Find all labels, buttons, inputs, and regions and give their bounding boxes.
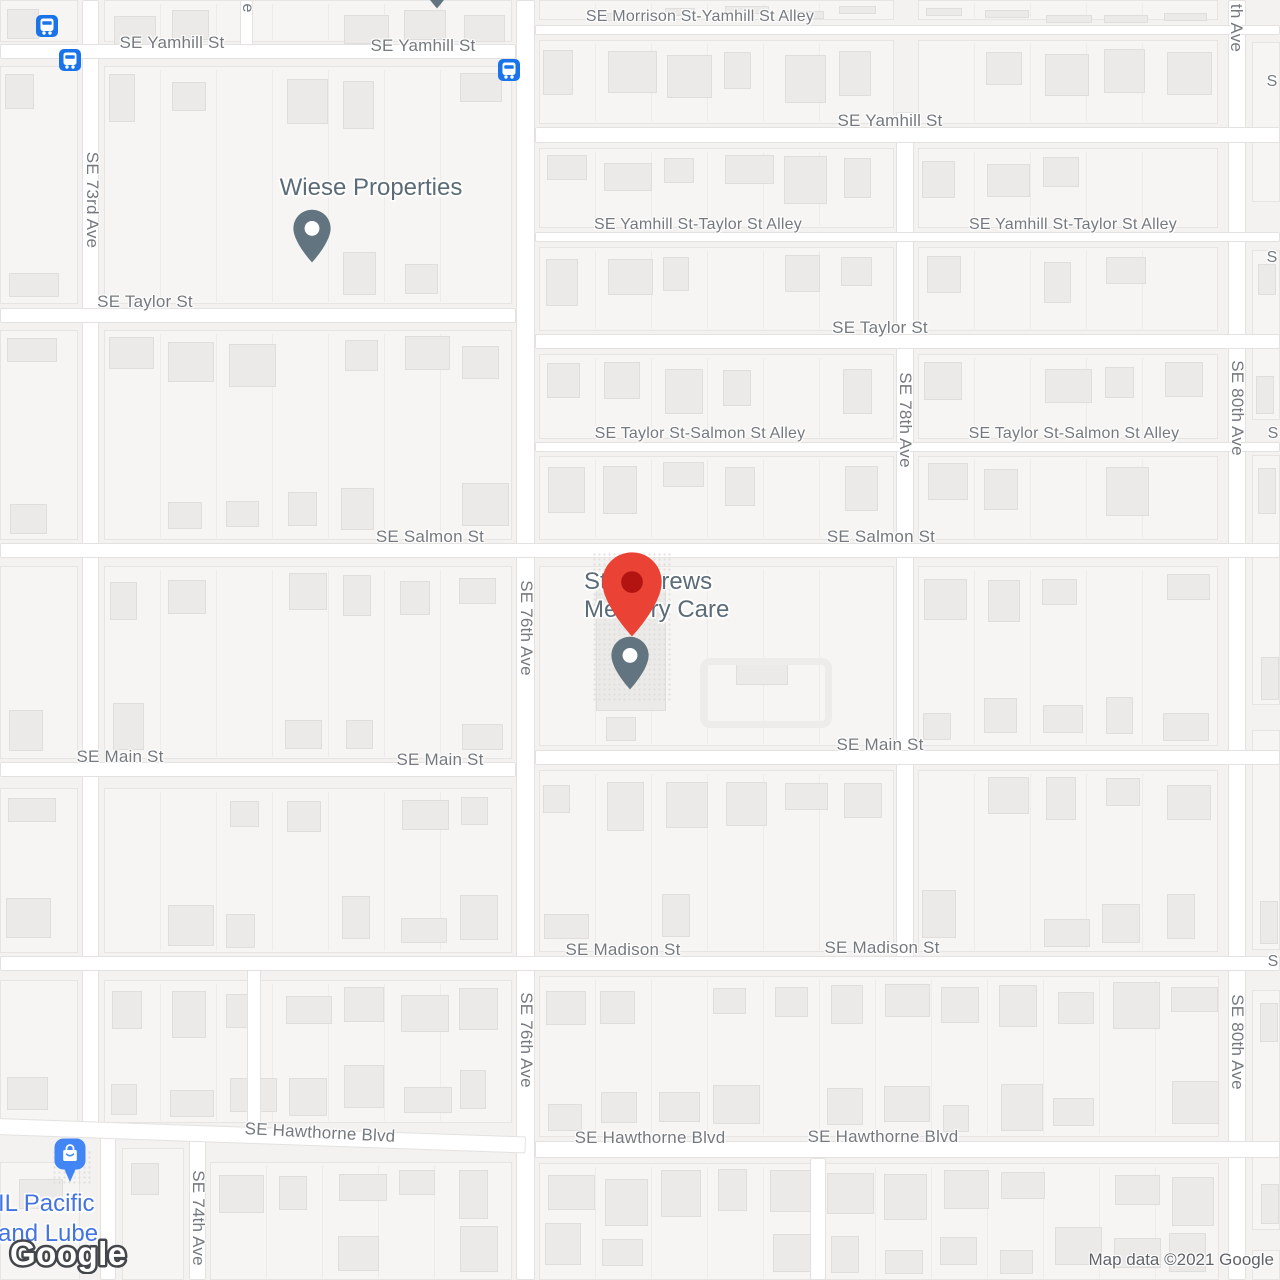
building bbox=[344, 1065, 384, 1108]
lot-line bbox=[974, 570, 975, 744]
building bbox=[401, 918, 447, 943]
building bbox=[461, 797, 488, 825]
lot-line bbox=[595, 44, 596, 122]
building bbox=[662, 894, 689, 937]
building bbox=[6, 898, 51, 938]
lot-line bbox=[216, 334, 217, 538]
building bbox=[607, 782, 644, 831]
building bbox=[844, 783, 883, 818]
building bbox=[608, 259, 653, 295]
lot-line bbox=[707, 980, 708, 1135]
building bbox=[999, 985, 1038, 1028]
lot-line bbox=[595, 152, 596, 226]
building bbox=[405, 264, 438, 294]
city-block bbox=[104, 330, 512, 540]
building bbox=[168, 905, 213, 946]
lot-line bbox=[328, 570, 329, 757]
building bbox=[400, 581, 430, 615]
building bbox=[884, 1086, 931, 1123]
building bbox=[172, 82, 207, 112]
bus-stop-icon[interactable] bbox=[498, 59, 520, 81]
lot-line bbox=[384, 570, 385, 757]
map-canvas[interactable]: SE Yamhill StSE Yamhill StSE Morrison St… bbox=[0, 0, 1280, 1280]
building bbox=[460, 73, 502, 101]
building bbox=[724, 52, 751, 89]
road bbox=[247, 956, 261, 1136]
lot-line bbox=[384, 334, 385, 538]
building bbox=[602, 1239, 642, 1266]
building bbox=[1045, 54, 1090, 96]
lot-line bbox=[651, 774, 652, 950]
building bbox=[601, 1092, 637, 1123]
building bbox=[1164, 13, 1207, 21]
building bbox=[827, 1173, 874, 1214]
building bbox=[926, 8, 962, 16]
lot-line bbox=[440, 570, 441, 757]
building bbox=[659, 1092, 700, 1123]
building bbox=[546, 259, 578, 306]
building bbox=[604, 163, 653, 191]
city-block bbox=[539, 976, 1219, 1137]
city-block bbox=[918, 247, 1218, 331]
building bbox=[279, 1176, 307, 1210]
city-block bbox=[918, 770, 1218, 952]
building bbox=[346, 720, 372, 749]
street-label: SE 80th Ave bbox=[1227, 994, 1247, 1089]
building bbox=[843, 369, 872, 415]
building bbox=[984, 698, 1017, 733]
building bbox=[605, 1179, 648, 1227]
building bbox=[665, 369, 704, 414]
building bbox=[544, 914, 589, 940]
building bbox=[1058, 992, 1094, 1024]
building bbox=[109, 74, 136, 123]
building bbox=[927, 256, 961, 292]
lot-line bbox=[160, 792, 161, 951]
lot-line bbox=[1030, 152, 1031, 226]
lot-line bbox=[974, 774, 975, 950]
building bbox=[1102, 904, 1139, 943]
building bbox=[1001, 1172, 1045, 1199]
building bbox=[1113, 982, 1160, 1029]
lot-line bbox=[328, 792, 329, 951]
building bbox=[604, 362, 639, 399]
building bbox=[338, 1236, 379, 1272]
building bbox=[1258, 264, 1276, 295]
lot-line bbox=[931, 980, 932, 1135]
building bbox=[986, 52, 1022, 85]
building bbox=[230, 801, 259, 827]
map-copyright: Map data ©2021 Google bbox=[1089, 1250, 1275, 1270]
street-label: SE Taylor St-Salmon St Alley bbox=[595, 425, 806, 443]
road bbox=[810, 1158, 826, 1280]
lot-line bbox=[328, 334, 329, 538]
city-block bbox=[0, 566, 78, 759]
city-block bbox=[1252, 990, 1280, 1230]
building bbox=[1167, 52, 1212, 95]
lot-line bbox=[272, 4, 273, 40]
building bbox=[723, 370, 751, 407]
street-label: S bbox=[1268, 425, 1279, 443]
street-label: SE 78th Ave bbox=[895, 372, 915, 467]
lot-line bbox=[216, 70, 217, 302]
lot-line bbox=[272, 570, 273, 757]
building bbox=[884, 1174, 927, 1220]
building bbox=[1167, 574, 1211, 600]
lot-line bbox=[763, 460, 764, 538]
building bbox=[1105, 367, 1134, 398]
lot-line bbox=[1030, 774, 1031, 950]
building bbox=[1172, 1081, 1219, 1124]
red-location-pin-icon[interactable] bbox=[601, 550, 663, 640]
lot-line bbox=[1030, 44, 1031, 122]
building bbox=[1260, 1003, 1278, 1041]
poi-label-wiese-properties[interactable]: Wiese Properties bbox=[280, 174, 463, 202]
building bbox=[545, 1223, 581, 1265]
lot-line bbox=[595, 1167, 596, 1278]
building bbox=[131, 1163, 159, 1195]
lot-line bbox=[819, 358, 820, 437]
lot-line bbox=[707, 460, 708, 538]
road bbox=[535, 25, 1280, 35]
building bbox=[600, 991, 635, 1024]
building bbox=[459, 578, 497, 604]
city-block bbox=[210, 1162, 512, 1280]
city-block bbox=[0, 980, 78, 1123]
building bbox=[229, 344, 276, 388]
building bbox=[459, 988, 497, 1030]
lot-line bbox=[595, 980, 596, 1135]
lot-line bbox=[160, 570, 161, 757]
lot-line bbox=[1142, 774, 1143, 950]
building bbox=[226, 501, 259, 527]
street-label: S bbox=[1268, 953, 1279, 971]
building bbox=[1043, 157, 1079, 187]
building bbox=[5, 74, 34, 108]
building bbox=[113, 703, 144, 750]
building bbox=[784, 156, 827, 203]
city-block bbox=[104, 788, 512, 953]
street-label: SE Yamhill St bbox=[371, 36, 476, 56]
lot-line bbox=[974, 460, 975, 538]
street-label: SE Hawthorne Blvd bbox=[808, 1127, 959, 1147]
shopping-store-pin-icon[interactable] bbox=[53, 1137, 87, 1183]
building bbox=[460, 1226, 498, 1272]
lot-line bbox=[595, 251, 596, 329]
google-logo-text: Google bbox=[10, 1235, 127, 1272]
building bbox=[1106, 778, 1140, 807]
lot-line bbox=[707, 251, 708, 329]
building bbox=[1053, 1098, 1094, 1126]
lot-line bbox=[763, 44, 764, 122]
building bbox=[1106, 697, 1133, 734]
building bbox=[1260, 901, 1278, 944]
building bbox=[922, 890, 955, 938]
city-block bbox=[539, 770, 894, 952]
building bbox=[460, 1070, 486, 1109]
building bbox=[988, 777, 1030, 814]
city-block bbox=[918, 566, 1218, 746]
building bbox=[401, 995, 449, 1032]
street-label: SE Main St bbox=[396, 750, 483, 770]
lot-line bbox=[322, 1166, 323, 1278]
building bbox=[603, 466, 637, 514]
city-block bbox=[104, 980, 512, 1123]
building bbox=[608, 51, 657, 93]
building bbox=[839, 6, 876, 14]
building bbox=[1106, 467, 1149, 516]
street-label: SE Morrison St-Yamhill St Alley bbox=[586, 8, 814, 26]
building bbox=[172, 991, 206, 1038]
building bbox=[168, 502, 203, 529]
lot-line bbox=[875, 980, 876, 1135]
lot-line bbox=[216, 984, 217, 1121]
lot-line bbox=[1142, 570, 1143, 744]
lot-line bbox=[266, 1166, 267, 1278]
lot-line bbox=[1030, 460, 1031, 538]
building bbox=[543, 785, 570, 813]
building bbox=[345, 340, 377, 371]
poi-label-line1: IL Pacific bbox=[0, 1189, 98, 1219]
city-block bbox=[104, 566, 512, 759]
building bbox=[775, 987, 808, 1017]
lot-line bbox=[1099, 980, 1100, 1135]
street-label: SE Yamhill St-Taylor St Alley bbox=[594, 216, 802, 234]
building bbox=[1172, 1177, 1214, 1226]
building bbox=[543, 50, 573, 96]
building bbox=[718, 1169, 746, 1211]
building bbox=[460, 895, 497, 940]
building bbox=[827, 1088, 862, 1126]
building bbox=[928, 463, 969, 500]
building bbox=[924, 362, 962, 400]
lot-line bbox=[1043, 980, 1044, 1135]
building bbox=[548, 467, 585, 513]
bus-stop-icon[interactable] bbox=[36, 15, 58, 37]
building bbox=[462, 724, 503, 750]
building bbox=[606, 717, 636, 741]
building bbox=[9, 710, 42, 751]
building bbox=[988, 580, 1021, 623]
st-andrews-poi-pin-icon[interactable] bbox=[610, 636, 650, 691]
building bbox=[924, 579, 967, 620]
building bbox=[1001, 1084, 1043, 1131]
city-block bbox=[0, 66, 78, 304]
building bbox=[287, 79, 329, 125]
building bbox=[226, 914, 255, 947]
building bbox=[1044, 262, 1071, 302]
building bbox=[547, 155, 587, 179]
building bbox=[1043, 705, 1083, 733]
lot-line bbox=[1142, 152, 1143, 226]
street-label: S bbox=[1267, 73, 1278, 91]
building bbox=[944, 1170, 990, 1208]
city-block bbox=[1252, 455, 1280, 705]
lot-line bbox=[1030, 251, 1031, 329]
building bbox=[785, 783, 828, 809]
building bbox=[785, 255, 820, 291]
building bbox=[885, 984, 931, 1017]
building bbox=[831, 985, 863, 1024]
lot-line bbox=[1086, 570, 1087, 744]
building bbox=[287, 801, 321, 833]
street-label: SE Salmon St bbox=[376, 527, 484, 547]
building bbox=[343, 252, 376, 295]
building bbox=[462, 346, 499, 379]
building bbox=[661, 1170, 700, 1217]
street-label: SE Hawthorne Blvd bbox=[575, 1128, 726, 1148]
street-label: SE 73rd Ave bbox=[82, 152, 102, 248]
building bbox=[286, 996, 332, 1025]
street-label: SE Yamhill St bbox=[838, 111, 943, 131]
building bbox=[940, 1237, 977, 1266]
building bbox=[9, 273, 59, 297]
building bbox=[462, 483, 509, 526]
street-label: SE Salmon St bbox=[827, 527, 935, 547]
street-label: SE Main St bbox=[836, 735, 923, 755]
city-block bbox=[1252, 42, 1280, 202]
building bbox=[288, 492, 318, 527]
building bbox=[405, 336, 450, 370]
building bbox=[339, 1174, 387, 1200]
building bbox=[1044, 919, 1090, 947]
bus-stop-icon[interactable] bbox=[59, 49, 81, 71]
street-label: SE Yamhill St bbox=[120, 33, 225, 53]
building bbox=[664, 158, 694, 183]
building bbox=[1167, 894, 1196, 939]
building bbox=[941, 987, 980, 1024]
street-label: SE Madison St bbox=[565, 940, 680, 960]
building bbox=[399, 1170, 435, 1195]
building bbox=[1045, 369, 1092, 403]
building bbox=[663, 462, 704, 486]
building bbox=[170, 1090, 214, 1117]
lot-line bbox=[651, 980, 652, 1135]
building bbox=[663, 257, 689, 292]
building bbox=[785, 55, 826, 103]
building bbox=[1261, 1184, 1279, 1224]
building bbox=[10, 504, 47, 534]
building bbox=[1106, 257, 1146, 284]
street-label: SE Main St bbox=[76, 747, 163, 767]
street-label: SE Taylor St bbox=[97, 292, 193, 312]
building bbox=[341, 488, 374, 529]
street-label: SE 76th Ave bbox=[516, 992, 536, 1087]
wiese-properties-pin-icon[interactable] bbox=[292, 209, 332, 264]
lot-line bbox=[384, 792, 385, 951]
lot-line bbox=[272, 792, 273, 951]
building bbox=[1104, 49, 1145, 93]
building bbox=[285, 720, 322, 749]
building bbox=[219, 1175, 264, 1213]
lot-line bbox=[707, 1167, 708, 1278]
building bbox=[1171, 987, 1218, 1012]
building bbox=[1167, 785, 1212, 819]
building bbox=[1104, 15, 1148, 23]
building bbox=[343, 81, 375, 129]
building bbox=[112, 991, 143, 1029]
building bbox=[1115, 1175, 1160, 1205]
lot-line bbox=[819, 460, 820, 538]
lot-line bbox=[987, 980, 988, 1135]
building bbox=[1261, 657, 1279, 700]
building bbox=[985, 10, 1029, 18]
building bbox=[344, 987, 384, 1022]
building bbox=[845, 466, 879, 512]
lot-line bbox=[1086, 152, 1087, 226]
building bbox=[885, 1250, 923, 1275]
lot-line bbox=[1030, 4, 1031, 18]
building bbox=[1042, 579, 1077, 605]
lot-line bbox=[875, 1167, 876, 1278]
building bbox=[1258, 468, 1276, 514]
lot-line bbox=[272, 70, 273, 302]
building bbox=[459, 1170, 488, 1219]
street-label: SE Yamhill St-Taylor St Alley bbox=[969, 216, 1177, 234]
building bbox=[111, 1084, 137, 1115]
building bbox=[841, 257, 872, 286]
building bbox=[289, 573, 328, 611]
building bbox=[831, 1236, 860, 1273]
building bbox=[987, 164, 1030, 198]
building bbox=[922, 161, 955, 198]
building bbox=[773, 1234, 814, 1272]
lot-line bbox=[974, 44, 975, 122]
building bbox=[713, 988, 746, 1014]
building bbox=[7, 338, 56, 362]
building bbox=[547, 363, 580, 398]
city-block bbox=[918, 40, 1218, 124]
street-label: SE 74th Ave bbox=[188, 1170, 208, 1265]
building bbox=[546, 991, 586, 1025]
lot-line bbox=[595, 460, 596, 538]
street-label: SE Taylor St-Salmon St Alley bbox=[969, 425, 1180, 443]
road bbox=[0, 308, 516, 323]
building bbox=[1046, 15, 1092, 23]
lot-line bbox=[763, 251, 764, 329]
lot-line bbox=[1030, 570, 1031, 744]
building bbox=[168, 342, 214, 382]
building bbox=[984, 469, 1017, 511]
building bbox=[713, 1085, 759, 1124]
street-label: e bbox=[238, 3, 256, 12]
building bbox=[726, 782, 767, 825]
street-label: SE Madison St bbox=[824, 938, 939, 958]
street-label: SE 80th Ave bbox=[1227, 360, 1247, 455]
building bbox=[1165, 362, 1203, 397]
building bbox=[1000, 1250, 1034, 1274]
building bbox=[7, 9, 38, 39]
lot-line bbox=[216, 570, 217, 757]
cut-off-pin-icon[interactable] bbox=[417, 0, 457, 10]
building bbox=[8, 798, 55, 822]
lot-line bbox=[1086, 460, 1087, 538]
street-label: SE Taylor St bbox=[832, 318, 928, 338]
street-label: S bbox=[1267, 249, 1278, 267]
building bbox=[667, 55, 713, 98]
lot-line bbox=[328, 4, 329, 40]
street-label: SE 76th Ave bbox=[516, 580, 536, 675]
google-logo[interactable]: Google bbox=[6, 1234, 136, 1274]
parking-lot-loop bbox=[700, 658, 832, 728]
city-block bbox=[0, 788, 78, 953]
lot-line bbox=[974, 4, 975, 18]
street-label: th Ave bbox=[1226, 4, 1246, 52]
building bbox=[402, 800, 449, 830]
city-block bbox=[918, 0, 1218, 20]
building bbox=[342, 896, 371, 939]
lot-line bbox=[931, 1167, 932, 1278]
